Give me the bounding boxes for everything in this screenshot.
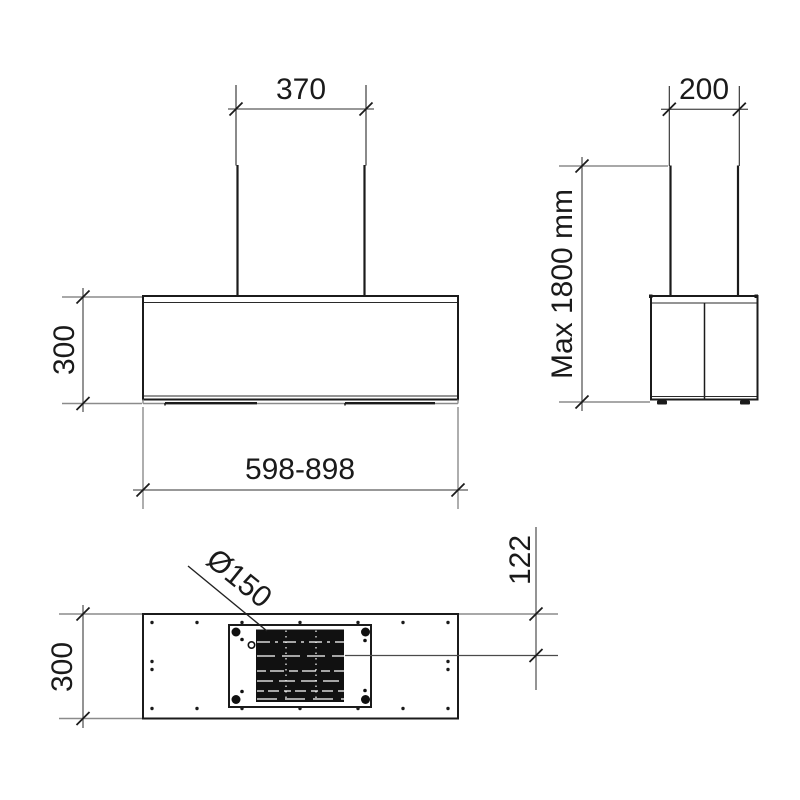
front-chimney-width-label: 370 (276, 73, 326, 106)
technical-drawing: 370 300 (0, 0, 800, 800)
front-dimension-chimney-width: 370 (228, 73, 374, 116)
plan-filter-frame (229, 625, 371, 707)
plan-dimension-duct-offset: 122 (504, 527, 543, 690)
side-foot-right (740, 401, 750, 405)
front-body-height-label: 300 (48, 325, 81, 375)
front-body-width-label: 598-898 (245, 453, 355, 486)
side-dimension-depth: 200 (661, 73, 748, 116)
plan-view: 122 Ø150 300 (46, 527, 558, 728)
front-dimension-body-height: 300 (48, 288, 142, 412)
side-body (649, 295, 758, 405)
plan-depth-label: 300 (46, 642, 79, 692)
plan-duct-callout: Ø150 (188, 543, 278, 631)
front-chimney (236, 85, 366, 296)
side-depth-label: 200 (679, 73, 729, 106)
front-body (143, 296, 458, 406)
plan-pilot-hole (248, 642, 254, 648)
side-chimney (669, 86, 739, 296)
front-dimension-body-width: 598-898 (133, 407, 468, 509)
side-dimension-max-height: Max 1800 mm (546, 157, 668, 411)
plan-duct-diameter-label: Ø150 (200, 543, 278, 615)
drawing-svg: 370 300 (0, 0, 800, 800)
plan-duct-offset-label: 122 (504, 535, 537, 585)
plan-dimension-depth: 300 (46, 605, 90, 728)
side-max-height-label: Max 1800 mm (546, 189, 579, 379)
side-view: 200 Max 1800 mm (546, 73, 758, 411)
front-view: 370 300 (48, 73, 468, 509)
side-foot-left (657, 401, 667, 405)
